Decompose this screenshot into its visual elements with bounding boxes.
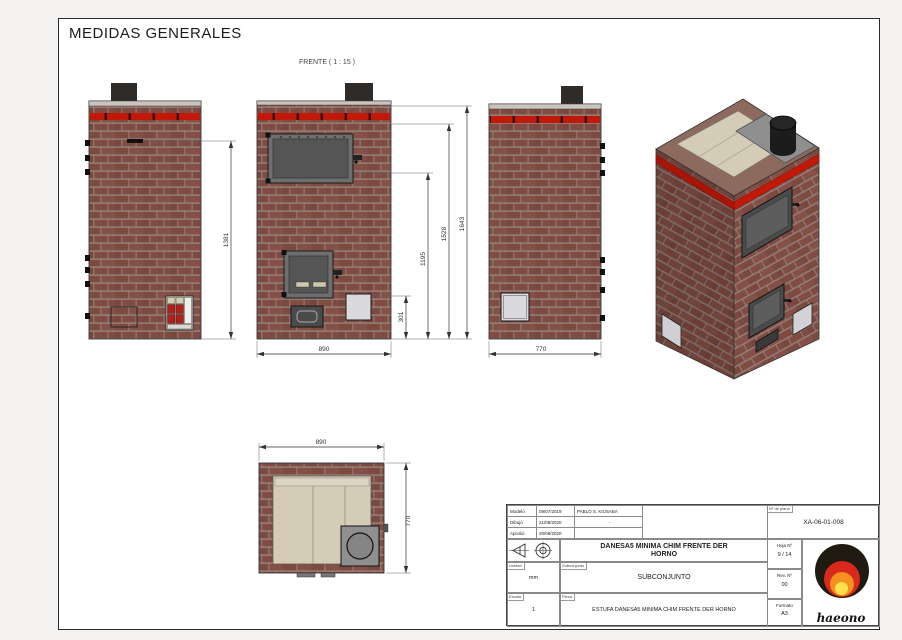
- top-view: [259, 463, 388, 577]
- front-chimney: [345, 83, 373, 101]
- projection-symbol-cell: [507, 539, 560, 562]
- logo-text: haeono: [803, 611, 879, 625]
- first-angle-projection-icon: [508, 540, 559, 561]
- approval-date: 20/08/2020: [536, 527, 575, 539]
- cleanout-door: [346, 294, 371, 320]
- back-view: [85, 83, 201, 339]
- svg-text:301: 301: [398, 311, 405, 322]
- svg-text:890: 890: [319, 346, 330, 353]
- front-red-band: [258, 113, 390, 120]
- scale-value: 1: [508, 594, 559, 626]
- oven-door-latch: [353, 155, 362, 160]
- subassembly-value: SUBCONJUNTO: [561, 563, 767, 592]
- dim-front-width: 890: [257, 341, 391, 358]
- back-red-band: [90, 113, 200, 120]
- svg-text:1643: 1643: [459, 216, 466, 231]
- back-chimney: [111, 83, 137, 101]
- format-label: Formato: [768, 600, 801, 608]
- blank-cell: [642, 505, 768, 539]
- drawing-sheet: MEDIDAS GENERALES: [58, 18, 880, 630]
- side-chimney: [561, 86, 583, 104]
- side-door: [501, 293, 529, 321]
- ash-door: [291, 306, 323, 327]
- front-view-label: FRENTE ( 1 : 15 ): [299, 59, 355, 66]
- firebox-door: [282, 250, 343, 298]
- svg-text:1528: 1528: [441, 226, 448, 241]
- svg-text:770: 770: [536, 346, 547, 353]
- oven-door: [266, 133, 363, 184]
- logo-outer-circle: [815, 544, 869, 598]
- part-cell: Pieza ESTUFA DANESA5 MINIMA CHIM FRENTE …: [560, 593, 768, 627]
- format-value: A3: [768, 608, 801, 617]
- firebox-latch: [333, 270, 342, 275]
- scale-cell: Escala 1: [507, 593, 560, 627]
- revision-cell: Rev. Nº 00: [767, 569, 802, 599]
- damper-handle: [127, 139, 143, 143]
- dim-top-width: 890: [259, 439, 384, 461]
- svg-text:890: 890: [316, 439, 327, 446]
- company-logo: haeono: [802, 539, 880, 627]
- revision-label: Rev. Nº: [768, 570, 801, 578]
- drawing-title-cell: DANESA5 MINIMA CHIM FRENTE DER HORNO: [560, 539, 768, 562]
- drawing-title-line1: DANESA5 MINIMA CHIM FRENTE DER: [600, 543, 727, 551]
- iso-chimney-pipe: [770, 116, 796, 156]
- revision-value: 00: [768, 578, 801, 588]
- drawing-number-cell: Nº de plano XA-06-01-008: [767, 505, 880, 539]
- sheet-number-value: 9 / 14: [768, 548, 801, 558]
- dim-top-depth: 770: [386, 463, 412, 573]
- unit-cell: Unidad mm: [507, 562, 560, 593]
- top-chimney-box: [341, 526, 379, 566]
- svg-text:1195: 1195: [420, 252, 427, 266]
- unit-value: mm: [508, 563, 559, 592]
- svg-text:1381: 1381: [223, 232, 230, 247]
- approval-name: [574, 527, 643, 539]
- front-view: [257, 83, 391, 339]
- format-cell: Formato A3: [767, 599, 802, 627]
- back-tile-grid: [166, 296, 193, 330]
- sheet-number-label: Hoja Nº: [768, 540, 801, 548]
- drawing-number: XA-06-01-008: [768, 506, 879, 538]
- isometric-view: [656, 99, 819, 379]
- sheet-number-cell: Hoja Nº 9 / 14: [767, 539, 802, 569]
- title-block: Modeló 09/07/2019 PABLO S. KIUSABA Dibuj…: [506, 504, 879, 626]
- side-red-band: [490, 116, 600, 123]
- part-value: ESTUFA DANESA5 MINIMA CHIM FRENTE DER HO…: [561, 594, 767, 626]
- subassembly-cell: Subconjunto SUBCONJUNTO: [560, 562, 768, 593]
- approval-role: Aprobó: [507, 527, 537, 539]
- side-view: [489, 86, 605, 339]
- dim-side-width: 770: [489, 341, 601, 358]
- svg-text:770: 770: [405, 515, 412, 526]
- drawing-title-line2: HORNO: [651, 551, 677, 559]
